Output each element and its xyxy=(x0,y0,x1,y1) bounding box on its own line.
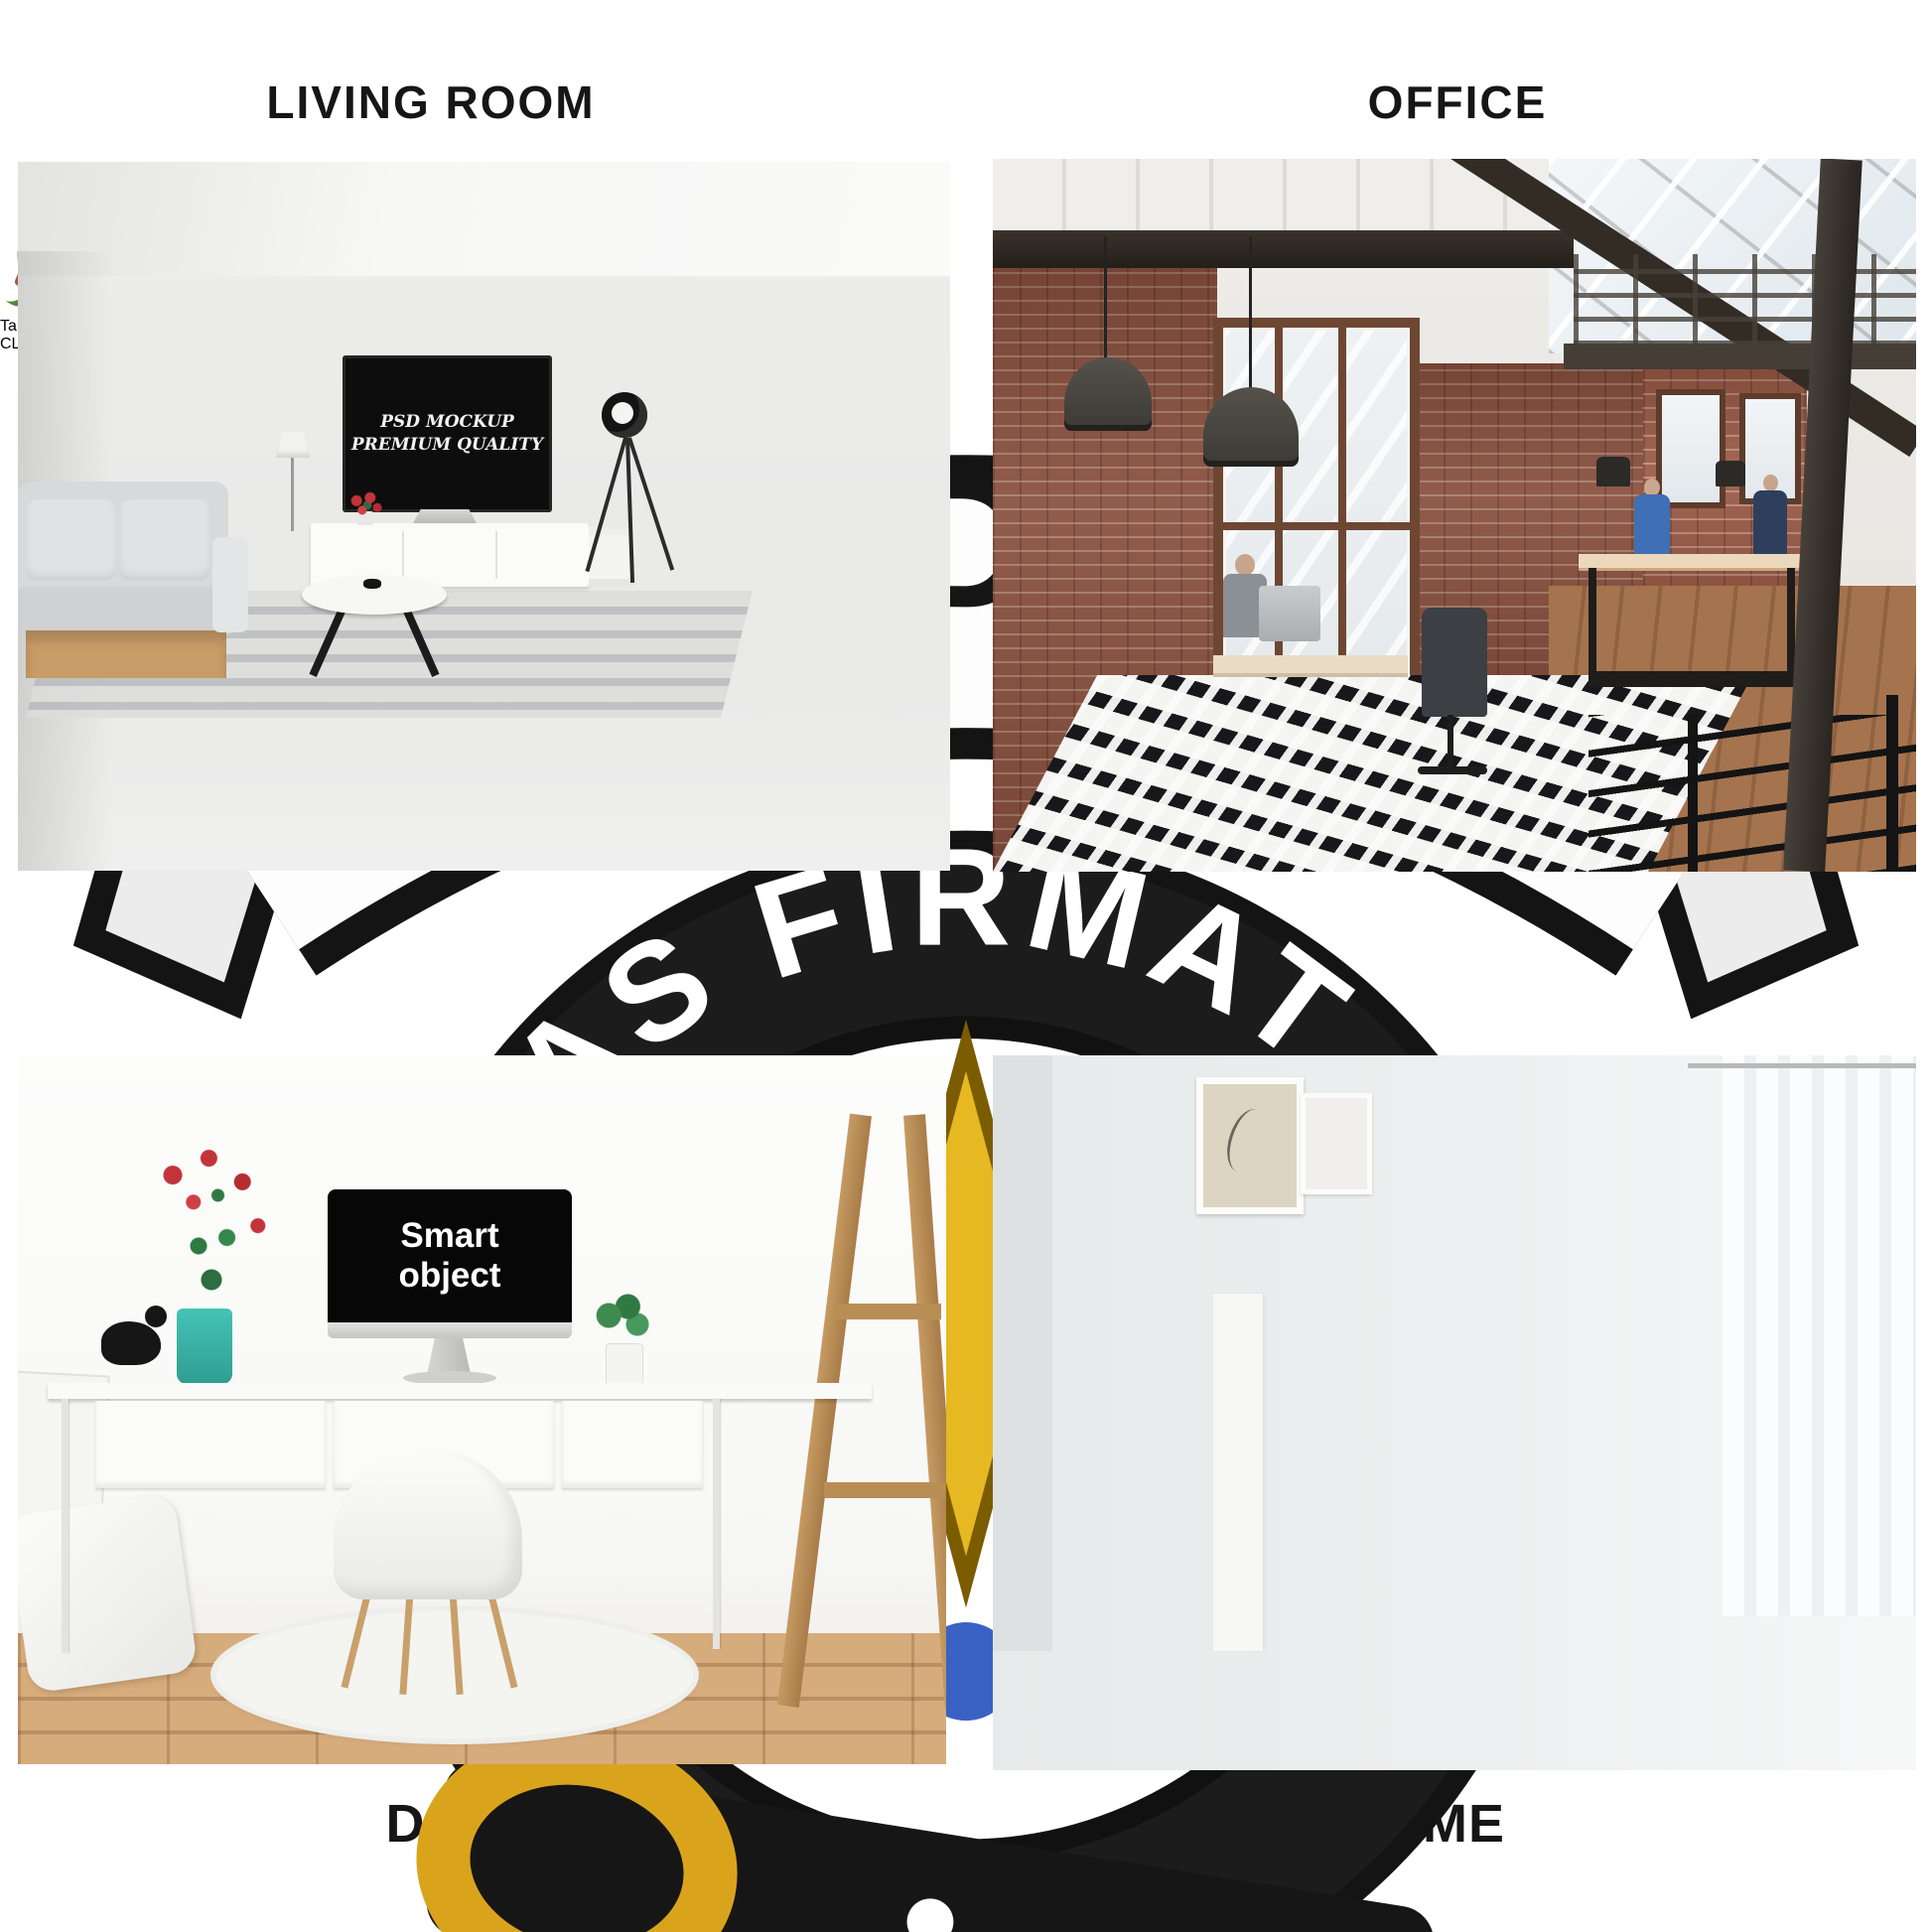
teal-plant-pot xyxy=(177,1309,232,1384)
couch-cushion xyxy=(26,499,117,581)
patterned-pillow xyxy=(993,1055,1095,1160)
wall-column xyxy=(1213,1294,1263,1651)
desk-photo: Smart object xyxy=(18,1055,946,1764)
person-dark-shirt xyxy=(1753,490,1787,556)
pendant-lamp-far xyxy=(1596,457,1630,486)
back-window xyxy=(1656,389,1725,508)
desk-drawer-unit xyxy=(95,1401,326,1488)
couch-wood-base xyxy=(26,630,226,678)
desk-monitor xyxy=(1259,586,1320,641)
mezzanine-edge xyxy=(1564,344,1916,369)
office-chair xyxy=(1422,608,1487,717)
standing-desk xyxy=(1579,554,1825,568)
monitor-stand xyxy=(427,1338,471,1374)
wood-frame-bar xyxy=(777,1114,872,1708)
window-transom xyxy=(1223,522,1410,530)
couch-seat xyxy=(18,587,234,634)
standing-desk-frame xyxy=(1588,568,1811,687)
white-desk-top xyxy=(48,1383,872,1399)
desk-drawer-unit xyxy=(562,1401,703,1488)
office-chair-pole xyxy=(1448,715,1453,770)
bench-leg xyxy=(993,1639,1009,1758)
office-chair-base xyxy=(1418,766,1487,774)
pendant-lamp-far xyxy=(1716,461,1745,486)
office-desk-left xyxy=(1213,655,1408,673)
patterned-pillow xyxy=(993,1153,1090,1256)
tv-text-line1: PSD MOCKUP xyxy=(380,411,514,434)
wood-frame-crossbar xyxy=(824,1482,945,1498)
wood-cabinet xyxy=(1049,1407,1214,1637)
floor-pillow xyxy=(18,1493,199,1694)
desk-leg xyxy=(62,1399,69,1653)
railing-post xyxy=(1886,695,1898,872)
bench-leg xyxy=(993,1758,1009,1770)
monitor-chin xyxy=(328,1322,572,1338)
office-photo xyxy=(993,159,1916,872)
pendant-cord xyxy=(1104,236,1107,365)
tripod-leg xyxy=(627,437,674,570)
mezzanine-railing xyxy=(1574,254,1916,345)
red-flower-plant xyxy=(147,1145,276,1313)
bird-figurine-head xyxy=(145,1306,167,1327)
green-desk-plant xyxy=(590,1292,653,1351)
scissors-handle-icon xyxy=(0,74,83,176)
sheer-curtain xyxy=(1723,1055,1916,1616)
red-flowers xyxy=(345,489,385,527)
console-seam xyxy=(402,531,404,579)
living-room-photo: PSD MOCKUP PREMIUM QUALITY xyxy=(18,162,950,871)
tv-text-line2: PREMIUM QUALITY xyxy=(351,434,543,457)
person-head xyxy=(1763,475,1778,491)
product-mockup-collage: LIVING ROOM OFFICE Desk HOME PSD MOCKUP … xyxy=(0,0,1932,1932)
wood-frame-crossbar xyxy=(834,1304,941,1319)
dark-beam-horizontal xyxy=(993,230,1574,268)
table-decor xyxy=(363,579,381,589)
floor-lamp-shade xyxy=(276,432,310,458)
couch-armrest xyxy=(212,537,248,632)
monitor-text-line1: Smart xyxy=(400,1216,498,1256)
bird-figurine xyxy=(101,1321,161,1365)
leaf-art xyxy=(1220,1104,1276,1177)
office-label: OFFICE xyxy=(1368,75,1548,129)
ceiling xyxy=(18,162,950,276)
white-plant-pot xyxy=(606,1343,643,1385)
railing-post xyxy=(1688,715,1698,872)
tv-stand xyxy=(413,509,477,523)
desktop-monitor: Smart object xyxy=(328,1189,572,1322)
console-seam xyxy=(495,531,497,579)
wall-art-frame-small xyxy=(1301,1093,1372,1194)
person-head xyxy=(1235,554,1255,576)
pendant-cord xyxy=(1249,236,1252,395)
couch-cushion xyxy=(119,499,210,581)
wood-frame-bar xyxy=(903,1114,946,1710)
floor-lamp-pole xyxy=(291,458,294,531)
spotlight-lamp-lens xyxy=(612,402,633,424)
home-photo xyxy=(993,1055,1916,1770)
curtain-rod xyxy=(1688,1063,1916,1068)
living-room-label: LIVING ROOM xyxy=(266,75,595,129)
monitor-text-line2: object xyxy=(398,1256,500,1296)
desk-leg xyxy=(713,1399,720,1649)
lower-railing xyxy=(1588,715,1916,872)
wall-art-frame xyxy=(1196,1077,1304,1214)
